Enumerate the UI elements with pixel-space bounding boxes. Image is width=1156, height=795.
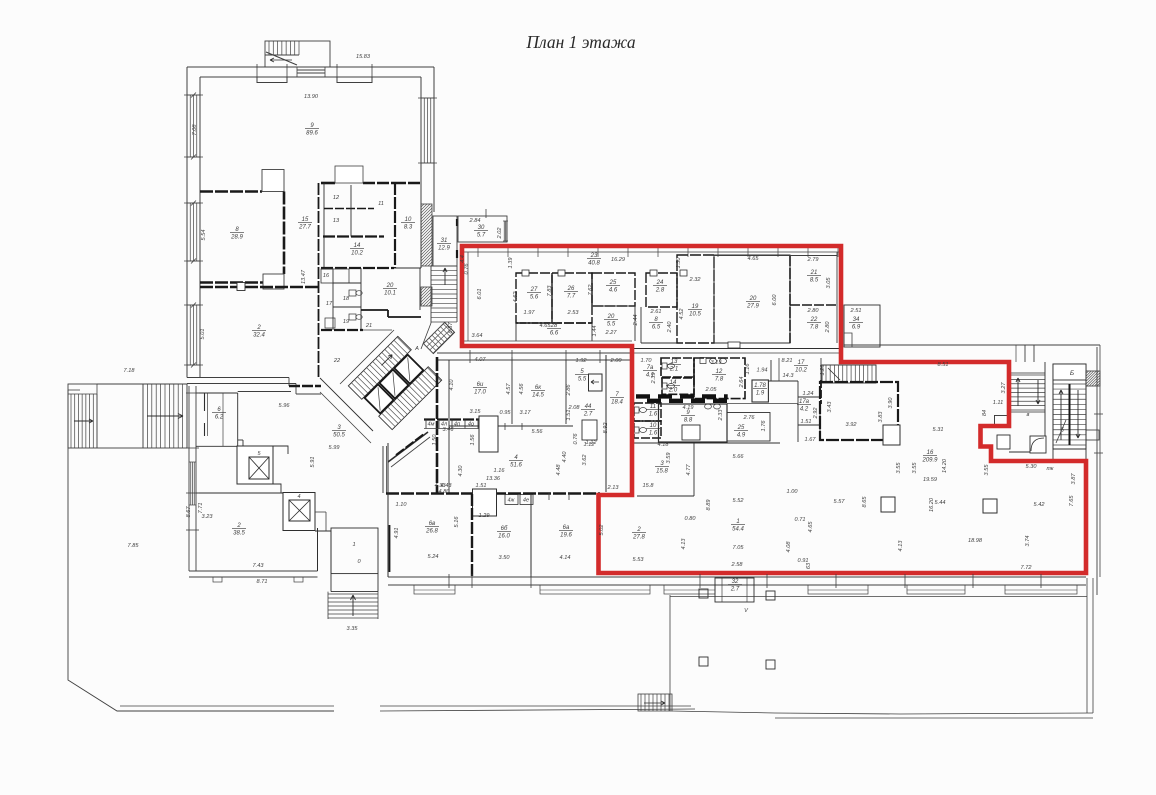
svg-text:14.20: 14.20	[942, 458, 948, 473]
svg-text:3.83: 3.83	[878, 411, 884, 423]
svg-text:1.51: 1.51	[476, 483, 487, 489]
svg-text:5.24: 5.24	[428, 554, 439, 560]
svg-text:2.76: 2.76	[743, 415, 756, 421]
svg-text:1.00: 1.00	[787, 489, 799, 495]
svg-text:7.8: 7.8	[810, 325, 819, 331]
svg-text:54.4: 54.4	[732, 527, 744, 533]
svg-text:2.27: 2.27	[605, 330, 618, 336]
svg-text:4.08: 4.08	[786, 541, 792, 553]
svg-text:16.29: 16.29	[611, 257, 625, 263]
svg-text:21: 21	[810, 270, 818, 276]
svg-text:4.65: 4.65	[808, 521, 814, 533]
svg-text:3.90: 3.90	[888, 397, 894, 409]
svg-text:24: 24	[656, 280, 664, 286]
svg-text:1.30: 1.30	[676, 257, 682, 269]
svg-text:4.91: 4.91	[394, 528, 400, 539]
svg-text:19: 19	[692, 304, 699, 310]
svg-text:1.78: 1.78	[754, 383, 766, 389]
svg-text:1.50: 1.50	[432, 434, 438, 446]
svg-text:7.62: 7.62	[588, 284, 594, 296]
svg-text:13: 13	[671, 359, 678, 365]
svg-text:4.56: 4.56	[519, 383, 525, 395]
svg-text:7.65: 7.65	[1069, 495, 1075, 507]
svg-text:1: 1	[352, 542, 355, 548]
svg-text:4.18: 4.18	[658, 442, 670, 448]
svg-text:28.9: 28.9	[230, 235, 243, 241]
svg-text:12.9: 12.9	[438, 246, 450, 252]
svg-text:3.87: 3.87	[1071, 473, 1077, 485]
svg-text:1.6: 1.6	[649, 431, 658, 437]
svg-text:8.67: 8.67	[186, 506, 192, 518]
svg-text:7.85: 7.85	[128, 543, 140, 549]
svg-text:10.2: 10.2	[351, 251, 363, 257]
svg-text:8.5: 8.5	[810, 278, 819, 284]
svg-text:27: 27	[530, 287, 538, 293]
svg-text:2.7: 2.7	[730, 587, 740, 593]
svg-text:7.43: 7.43	[253, 563, 265, 569]
svg-text:4.2: 4.2	[800, 407, 809, 413]
svg-text:6.5: 6.5	[652, 325, 661, 331]
svg-text:13: 13	[333, 218, 340, 224]
svg-text:4.52: 4.52	[679, 308, 685, 320]
svg-text:3.27: 3.27	[1001, 382, 1007, 394]
svg-text:6.00: 6.00	[772, 294, 778, 306]
svg-text:0.95: 0.95	[500, 410, 512, 416]
svg-text:2: 2	[236, 523, 241, 529]
svg-text:4.19: 4.19	[683, 405, 694, 411]
svg-text:2.51: 2.51	[850, 308, 862, 314]
svg-text:5.52: 5.52	[733, 498, 745, 504]
svg-text:15: 15	[302, 217, 309, 223]
svg-text:4е: 4е	[523, 498, 529, 504]
svg-text:14.5: 14.5	[532, 393, 544, 399]
svg-text:0.76: 0.76	[573, 433, 579, 445]
svg-text:2.02: 2.02	[497, 227, 503, 240]
svg-text:1.94: 1.94	[757, 368, 768, 374]
svg-text:10.5: 10.5	[689, 312, 701, 318]
svg-text:4.62: 4.62	[513, 291, 519, 303]
svg-text:19.59: 19.59	[923, 477, 937, 483]
svg-text:4.07: 4.07	[475, 357, 487, 363]
svg-text:23: 23	[590, 253, 598, 259]
svg-text:1.92: 1.92	[576, 358, 588, 364]
svg-text:0.71: 0.71	[795, 517, 806, 523]
svg-text:17.0: 17.0	[474, 390, 486, 396]
svg-text:17а: 17а	[799, 399, 810, 405]
svg-text:1.9: 1.9	[756, 391, 765, 397]
svg-text:17: 17	[326, 301, 333, 307]
svg-text:1.39: 1.39	[508, 258, 514, 269]
svg-text:22: 22	[810, 317, 818, 323]
svg-text:1.67: 1.67	[805, 437, 817, 443]
svg-text:3.55: 3.55	[912, 462, 918, 474]
svg-text:4.65: 4.65	[540, 323, 552, 329]
svg-text:16.0: 16.0	[498, 534, 510, 540]
svg-text:1.44: 1.44	[592, 326, 598, 337]
svg-text:1.16: 1.16	[494, 468, 506, 474]
svg-text:пж: пж	[1047, 466, 1055, 472]
svg-text:4.13: 4.13	[898, 540, 904, 552]
svg-text:12: 12	[716, 369, 723, 375]
svg-text:4.30: 4.30	[458, 465, 464, 477]
svg-text:1.76: 1.76	[761, 420, 767, 432]
svg-text:2.64: 2.64	[739, 377, 745, 389]
svg-text:7.71: 7.71	[198, 503, 204, 514]
svg-text:1.6: 1.6	[649, 412, 658, 418]
svg-text:25: 25	[737, 425, 745, 431]
svg-text:6.6: 6.6	[550, 331, 559, 337]
svg-text:3.59: 3.59	[666, 453, 672, 464]
svg-text:5.91: 5.91	[310, 457, 316, 468]
svg-text:50.5: 50.5	[333, 433, 345, 439]
svg-text:16.20: 16.20	[929, 497, 935, 512]
svg-text:2.7: 2.7	[583, 412, 593, 418]
svg-text:15.8: 15.8	[643, 483, 655, 489]
svg-text:1.56: 1.56	[470, 434, 476, 446]
svg-text:4.10: 4.10	[449, 379, 455, 391]
svg-text:4: 4	[297, 494, 300, 500]
svg-text:13.90: 13.90	[304, 94, 319, 100]
svg-text:7.72: 7.72	[1021, 565, 1033, 571]
svg-text:10.1: 10.1	[384, 291, 396, 297]
svg-text:28: 28	[550, 323, 558, 329]
svg-text:32: 32	[732, 579, 739, 585]
svg-text:14.3: 14.3	[783, 373, 795, 379]
svg-text:7.8: 7.8	[715, 377, 724, 383]
svg-text:2.44: 2.44	[633, 315, 639, 327]
svg-text:30: 30	[478, 225, 485, 231]
svg-text:А: А	[414, 346, 419, 352]
svg-text:3.35: 3.35	[347, 626, 359, 632]
svg-text:7.05: 7.05	[733, 545, 745, 551]
svg-text:2.8: 2.8	[655, 288, 665, 294]
svg-text:2.05: 2.05	[705, 387, 718, 393]
svg-text:27.8: 27.8	[632, 535, 645, 541]
svg-text:5.54: 5.54	[201, 230, 207, 241]
svg-text:6в: 6в	[429, 521, 435, 527]
svg-text:5.57: 5.57	[834, 499, 846, 505]
svg-text:4.14: 4.14	[560, 555, 571, 561]
svg-text:3.55: 3.55	[984, 464, 990, 476]
svg-text:6а: 6а	[563, 525, 570, 531]
svg-text:26.8: 26.8	[425, 529, 438, 535]
svg-text:20: 20	[386, 283, 394, 289]
svg-text:5.99: 5.99	[329, 445, 340, 451]
svg-text:3.64: 3.64	[472, 333, 483, 339]
svg-text:5.02: 5.02	[599, 524, 605, 536]
svg-text:8.8: 8.8	[684, 418, 693, 424]
svg-text:18.98: 18.98	[968, 538, 983, 544]
svg-text:3.13: 3.13	[711, 360, 723, 366]
svg-text:16: 16	[927, 450, 934, 456]
svg-text:3.05: 3.05	[826, 277, 832, 289]
svg-text:10.2: 10.2	[795, 368, 807, 374]
svg-text:4п: 4п	[454, 422, 460, 428]
svg-text:0.76: 0.76	[464, 263, 470, 275]
svg-text:8.71: 8.71	[257, 579, 268, 585]
svg-text:4.57: 4.57	[506, 383, 512, 395]
svg-text:2.58: 2.58	[731, 562, 744, 568]
svg-text:31: 31	[441, 238, 448, 244]
svg-text:5.7: 5.7	[477, 233, 486, 239]
svg-text:51.6: 51.6	[510, 463, 522, 469]
svg-text:5.96: 5.96	[279, 403, 291, 409]
svg-text:2.00: 2.00	[610, 358, 623, 364]
svg-text:27.9: 27.9	[746, 304, 759, 310]
svg-text:2: 2	[256, 325, 261, 331]
svg-text:5.6: 5.6	[530, 295, 539, 301]
svg-text:5.44: 5.44	[935, 500, 946, 506]
svg-text:4м: 4м	[428, 422, 435, 428]
svg-text:8.92: 8.92	[603, 422, 609, 434]
svg-text:5.30: 5.30	[1026, 464, 1038, 470]
svg-text:13.36: 13.36	[486, 476, 501, 482]
svg-text:2.13: 2.13	[607, 485, 620, 491]
svg-text:13.47: 13.47	[301, 269, 307, 284]
svg-text:10: 10	[650, 423, 657, 429]
svg-text:5.31: 5.31	[933, 427, 944, 433]
svg-text:2.32: 2.32	[689, 277, 702, 283]
svg-text:3.15: 3.15	[470, 409, 482, 415]
svg-text:20: 20	[607, 314, 615, 320]
svg-text:6.01: 6.01	[477, 289, 483, 300]
svg-text:1.51: 1.51	[566, 410, 572, 421]
svg-text:40.8: 40.8	[588, 261, 600, 267]
svg-text:8.21: 8.21	[782, 358, 793, 364]
svg-text:5.53: 5.53	[633, 557, 645, 563]
svg-text:2.1: 2.1	[669, 367, 678, 373]
svg-text:2.39: 2.39	[651, 373, 657, 385]
svg-text:4.13: 4.13	[681, 538, 687, 550]
svg-text:2.0: 2.0	[668, 388, 678, 394]
svg-text:1: 1	[736, 519, 739, 525]
svg-text:16: 16	[323, 273, 330, 279]
svg-text:7.18: 7.18	[124, 368, 136, 374]
svg-text:3.62: 3.62	[582, 454, 588, 466]
svg-text:6.2: 6.2	[215, 415, 224, 421]
svg-text:19.6: 19.6	[560, 533, 572, 539]
svg-text:5.56: 5.56	[532, 429, 544, 435]
svg-text:5.5: 5.5	[607, 322, 616, 328]
svg-text:1.29: 1.29	[479, 513, 490, 519]
svg-text:2.84: 2.84	[469, 218, 481, 224]
svg-text:84: 84	[982, 410, 988, 416]
svg-text:5.01: 5.01	[200, 329, 206, 340]
svg-text:3.23: 3.23	[202, 514, 214, 520]
svg-text:5.66: 5.66	[733, 454, 745, 460]
svg-text:4.77: 4.77	[686, 464, 692, 476]
svg-text:18.4: 18.4	[611, 400, 623, 406]
svg-text:в: в	[1027, 412, 1030, 418]
svg-text:15.8: 15.8	[656, 469, 668, 475]
svg-text:4.9: 4.9	[737, 433, 746, 439]
svg-text:3.74: 3.74	[1025, 536, 1031, 547]
svg-text:2.53: 2.53	[567, 310, 580, 316]
svg-text:7.83: 7.83	[547, 285, 553, 297]
svg-text:15.83: 15.83	[356, 54, 371, 60]
svg-text:14: 14	[354, 243, 361, 249]
svg-text:6.9: 6.9	[852, 325, 861, 331]
svg-text:2.61: 2.61	[650, 309, 662, 315]
svg-text:8.65: 8.65	[862, 496, 868, 508]
svg-text:11: 11	[378, 201, 384, 207]
svg-text:22: 22	[333, 358, 341, 364]
svg-text:4.4: 4.4	[460, 255, 466, 263]
svg-text:4.6: 4.6	[609, 288, 618, 294]
svg-text:1.29: 1.29	[820, 365, 826, 376]
svg-text:План 1 этажа: План 1 этажа	[525, 32, 636, 52]
svg-text:Б: Б	[1070, 370, 1074, 377]
svg-text:14: 14	[670, 380, 677, 386]
svg-text:7а: 7а	[647, 365, 654, 371]
svg-text:1.24: 1.24	[803, 391, 814, 397]
svg-text:1.10: 1.10	[396, 502, 408, 508]
svg-text:4о: 4о	[468, 422, 474, 428]
svg-text:2.86: 2.86	[566, 384, 572, 397]
svg-text:2.80: 2.80	[807, 308, 820, 314]
svg-text:1.97: 1.97	[524, 310, 536, 316]
svg-text:2: 2	[636, 527, 641, 533]
svg-text:10: 10	[405, 217, 412, 223]
svg-text:3.43: 3.43	[827, 401, 833, 413]
svg-text:2.92: 2.92	[813, 407, 819, 420]
svg-text:2.40: 2.40	[667, 321, 673, 334]
svg-text:1.12: 1.12	[584, 442, 596, 448]
svg-text:8.57: 8.57	[448, 322, 454, 334]
svg-text:44: 44	[585, 404, 592, 410]
svg-text:1.51: 1.51	[801, 419, 812, 425]
svg-text:21: 21	[365, 323, 372, 329]
svg-text:4.65: 4.65	[748, 256, 760, 262]
svg-text:32.4: 32.4	[253, 333, 265, 339]
svg-text:7.7: 7.7	[567, 294, 576, 300]
svg-text:2.33: 2.33	[718, 409, 724, 422]
svg-text:1.16: 1.16	[745, 363, 751, 375]
svg-text:8.89: 8.89	[706, 500, 712, 511]
svg-text:6б: 6б	[501, 526, 508, 532]
svg-text:8.3: 8.3	[404, 225, 413, 231]
svg-text:4.40: 4.40	[562, 451, 568, 463]
svg-text:11: 11	[650, 404, 656, 410]
svg-text:3.55: 3.55	[896, 462, 902, 474]
svg-text:19: 19	[343, 319, 349, 325]
svg-text:3.50: 3.50	[499, 555, 511, 561]
svg-text:89.6: 89.6	[306, 131, 318, 137]
svg-text:38.5: 38.5	[233, 531, 245, 537]
svg-text:20: 20	[749, 296, 757, 302]
svg-text:2.80: 2.80	[825, 321, 831, 334]
svg-text:5.16: 5.16	[454, 516, 460, 528]
svg-text:27.7: 27.7	[298, 225, 311, 231]
svg-text:3.46: 3.46	[443, 427, 455, 433]
svg-text:2.79: 2.79	[807, 257, 819, 263]
svg-text:12: 12	[333, 195, 340, 201]
svg-text:5.5: 5.5	[578, 377, 587, 383]
svg-text:3.92: 3.92	[846, 422, 858, 428]
svg-text:34: 34	[853, 317, 860, 323]
svg-text:17: 17	[798, 360, 805, 366]
svg-text:25: 25	[609, 280, 617, 286]
svg-text:5.42: 5.42	[1034, 502, 1046, 508]
svg-text:4.48: 4.48	[556, 464, 562, 476]
svg-text:3.17: 3.17	[520, 410, 532, 416]
svg-text:4ж: 4ж	[508, 498, 516, 504]
svg-text:18: 18	[343, 296, 350, 302]
svg-text:7.08: 7.08	[192, 124, 198, 136]
svg-text:209.9: 209.9	[921, 458, 938, 464]
svg-text:4л: 4л	[441, 422, 448, 428]
svg-text:26: 26	[567, 286, 575, 292]
svg-text:4.80: 4.80	[439, 489, 451, 495]
svg-text:0.80: 0.80	[685, 516, 697, 522]
svg-text:1.11: 1.11	[993, 400, 1003, 406]
svg-text:4.33: 4.33	[435, 483, 447, 489]
svg-text:6и: 6и	[477, 382, 484, 388]
svg-text:8.51: 8.51	[938, 362, 949, 368]
svg-text:1.70: 1.70	[641, 358, 653, 364]
svg-text:63: 63	[806, 562, 812, 569]
